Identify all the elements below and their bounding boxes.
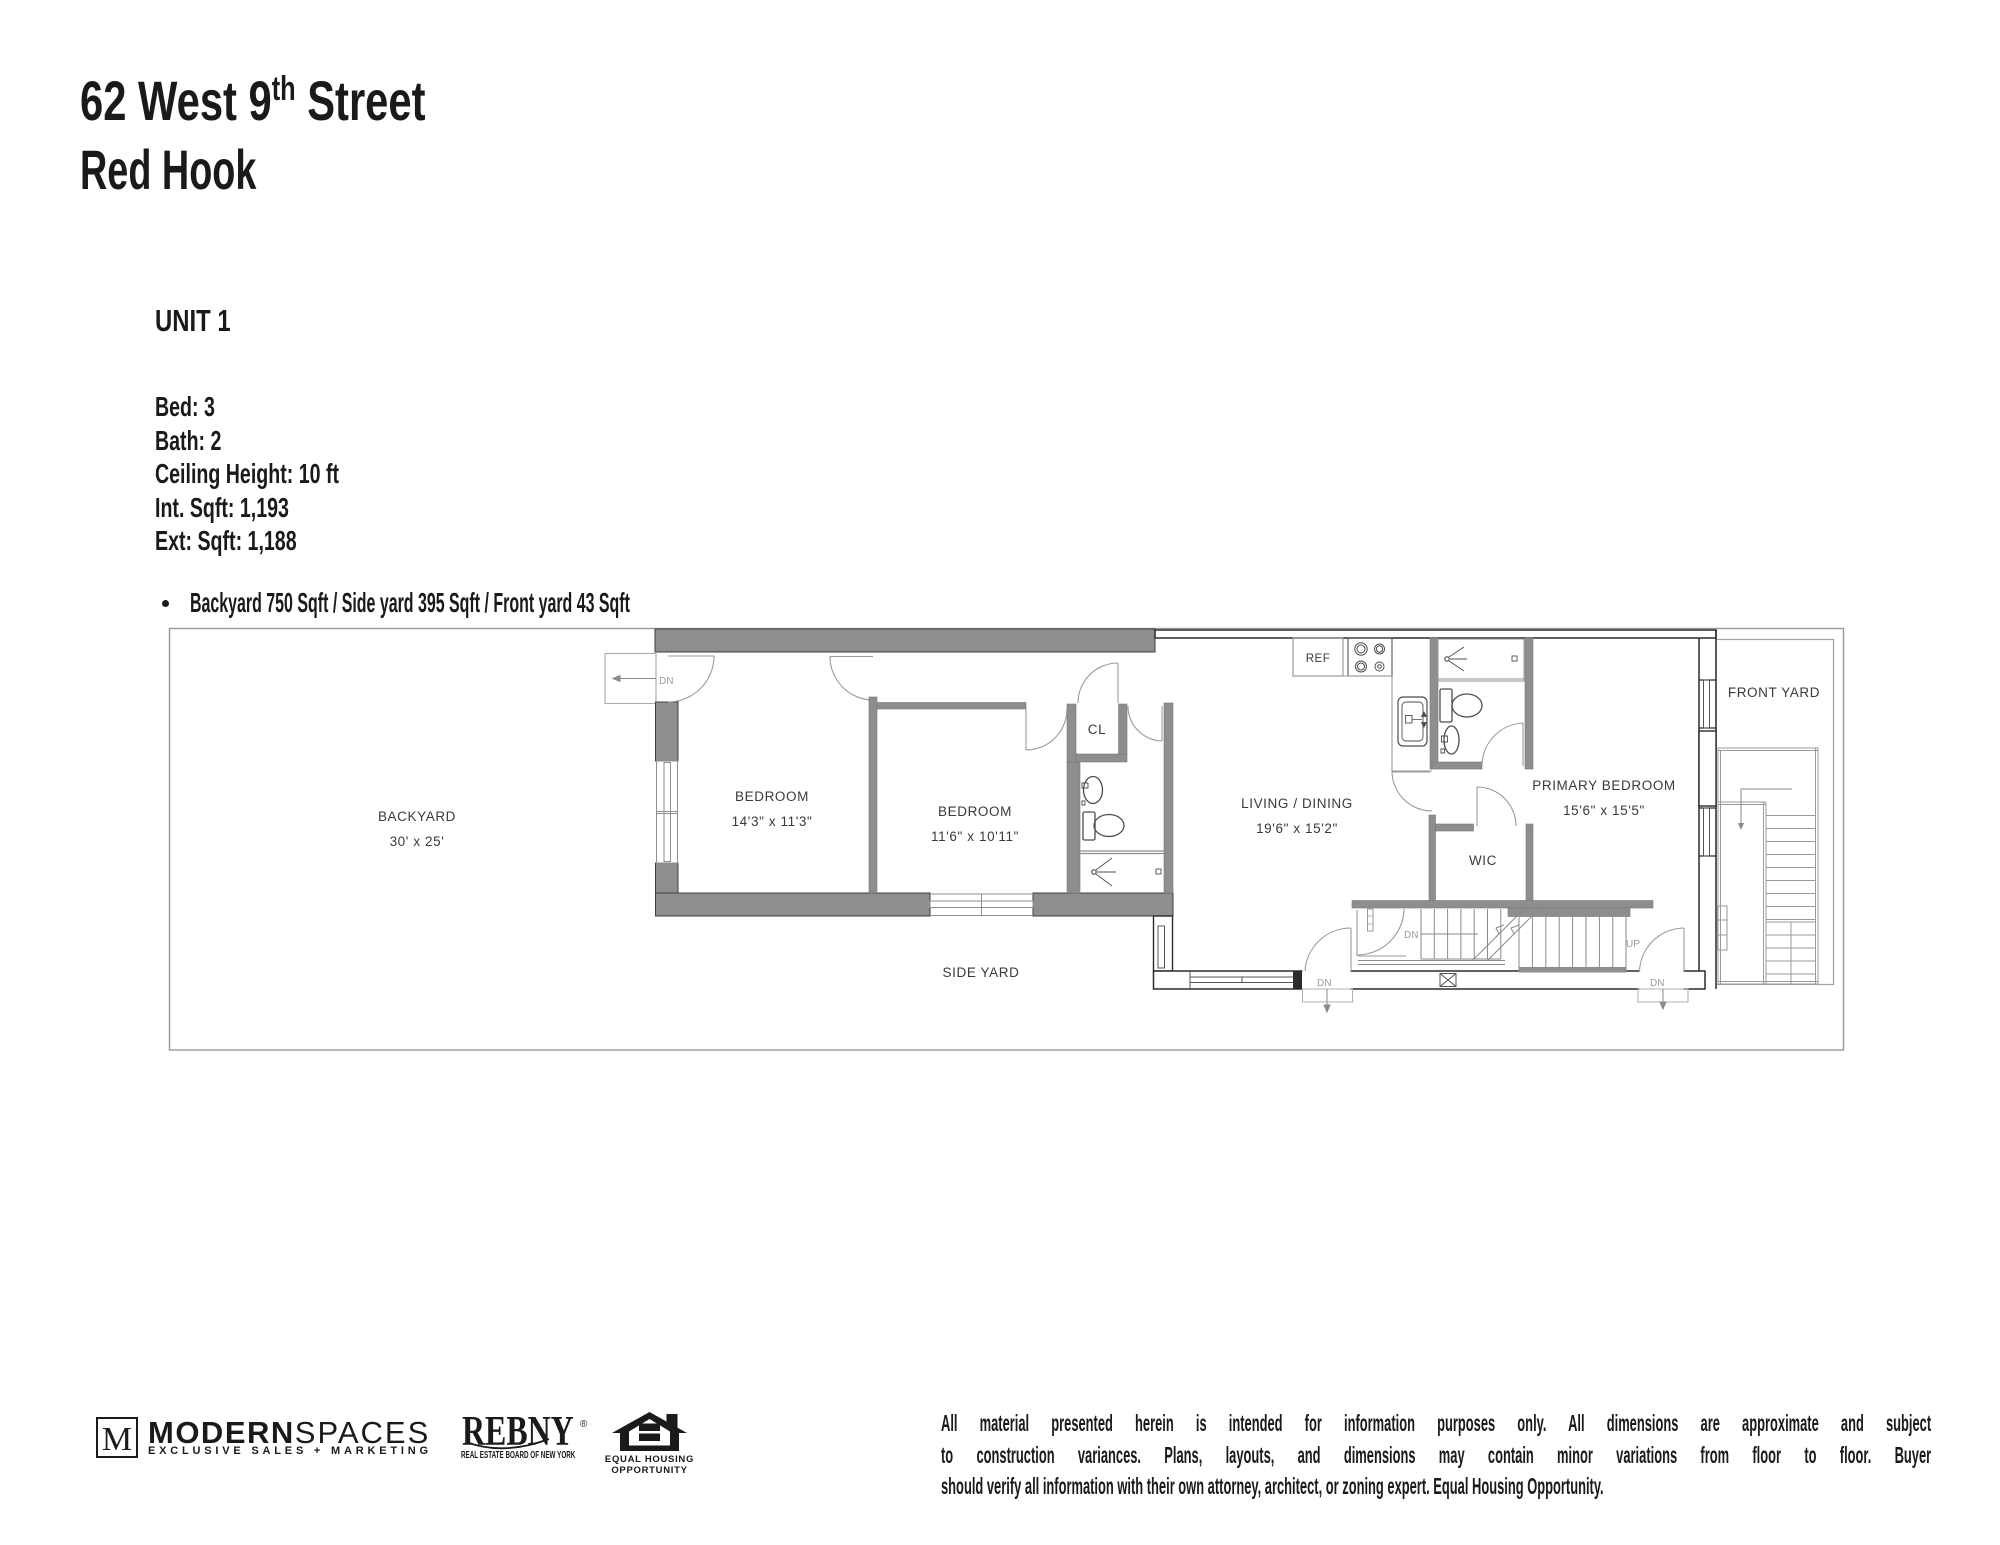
svg-text:PRIMARY BEDROOM: PRIMARY BEDROOM xyxy=(1532,778,1676,793)
svg-text:UP: UP xyxy=(1626,939,1640,950)
svg-text:BEDROOM: BEDROOM xyxy=(735,789,809,804)
svg-text:OPPORTUNITY: OPPORTUNITY xyxy=(611,1465,687,1476)
svg-text:BACKYARD: BACKYARD xyxy=(378,809,456,824)
svg-text:BEDROOM: BEDROOM xyxy=(938,804,1012,819)
svg-text:15'6" x 15'5": 15'6" x 15'5" xyxy=(1563,803,1645,818)
svg-text:11'6" x 10'11": 11'6" x 10'11" xyxy=(931,829,1019,844)
svg-text:19'6" x 15'2": 19'6" x 15'2" xyxy=(1256,821,1338,836)
svg-text:DN: DN xyxy=(1317,978,1331,989)
svg-text:14'3" x 11'3": 14'3" x 11'3" xyxy=(732,814,813,829)
svg-text:DN: DN xyxy=(659,676,673,687)
svg-text:DN: DN xyxy=(1650,978,1664,989)
svg-text:30' x 25': 30' x 25' xyxy=(390,834,445,849)
svg-text:DN: DN xyxy=(1404,930,1418,941)
svg-text:LIVING / DINING: LIVING / DINING xyxy=(1241,796,1353,811)
svg-text:FRONT YARD: FRONT YARD xyxy=(1728,685,1820,700)
svg-text:EQUAL HOUSING: EQUAL HOUSING xyxy=(605,1454,694,1465)
svg-text:WIC: WIC xyxy=(1469,853,1497,868)
svg-text:CL: CL xyxy=(1088,722,1106,737)
svg-text:SIDE YARD: SIDE YARD xyxy=(943,965,1020,980)
svg-text:REF: REF xyxy=(1306,653,1331,665)
